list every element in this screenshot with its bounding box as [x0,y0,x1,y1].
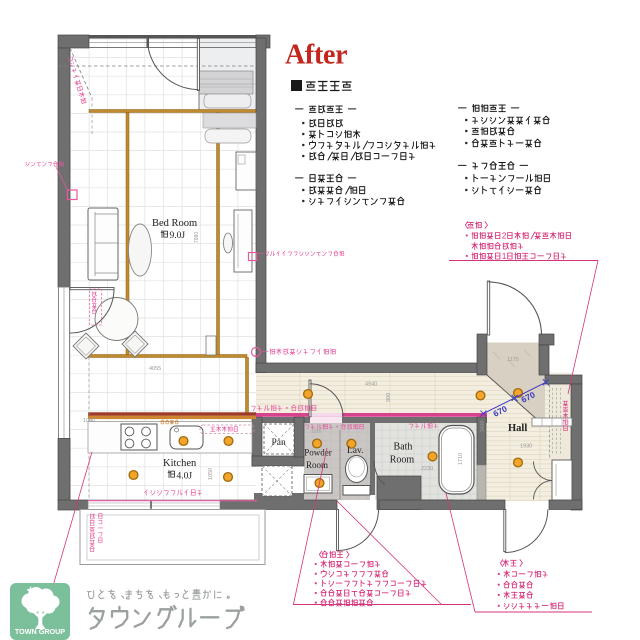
svg-text:1930: 1930 [520,444,532,450]
svg-text:After: After [285,40,347,71]
svg-text:3400: 3400 [480,421,486,432]
svg-text:2230: 2230 [421,466,433,472]
svg-text:Hall: Hall [508,423,527,434]
svg-text:1710: 1710 [458,453,464,465]
svg-text:1175: 1175 [507,357,519,363]
svg-text:4.0J: 4.0J [177,472,193,482]
svg-text:4055: 4055 [149,366,161,372]
svg-text:Bath: Bath [394,442,413,453]
svg-text:Room: Room [390,455,415,466]
svg-text:7980: 7980 [194,232,200,243]
svg-text:Pan: Pan [272,438,287,448]
svg-text:900: 900 [386,393,392,402]
svg-text:Lav.: Lav. [347,446,364,456]
svg-text:1040: 1040 [83,418,95,424]
svg-text:1: 1 [502,251,507,261]
svg-text:Powder: Powder [304,448,332,458]
svg-text:Room: Room [306,460,328,470]
svg-text:4940: 4940 [365,382,377,388]
svg-text:Kitchen: Kitchen [163,458,197,469]
svg-text:2: 2 [502,230,507,240]
svg-text:TOWN GROUP: TOWN GROUP [15,627,65,636]
svg-text:Bed Room: Bed Room [152,218,197,229]
svg-text:1050: 1050 [208,468,214,480]
svg-text:9.0J: 9.0J [170,231,186,241]
